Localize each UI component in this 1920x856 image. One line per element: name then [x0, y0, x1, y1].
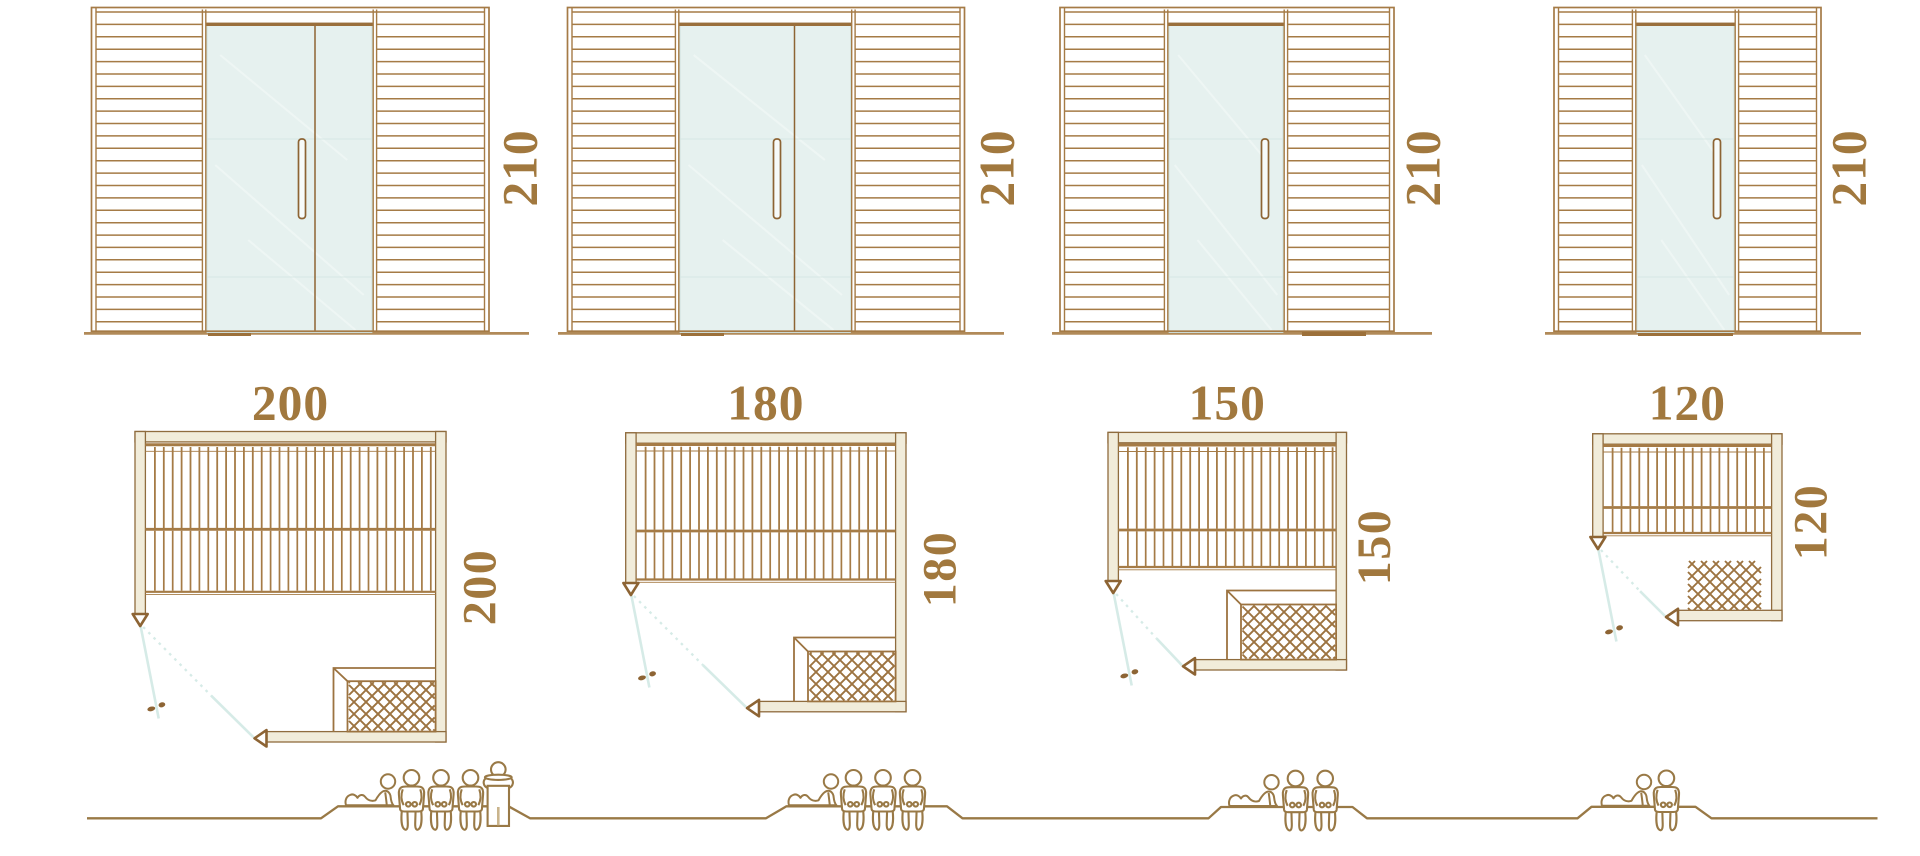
svg-text:180: 180 — [914, 531, 967, 608]
svg-text:210: 210 — [970, 129, 1025, 206]
svg-text:180: 180 — [727, 376, 804, 431]
svg-text:150: 150 — [1189, 376, 1266, 431]
svg-text:210: 210 — [1396, 129, 1451, 206]
svg-text:120: 120 — [1785, 484, 1838, 561]
svg-text:210: 210 — [493, 129, 548, 206]
svg-text:150: 150 — [1348, 509, 1401, 586]
svg-text:200: 200 — [252, 376, 329, 431]
svg-text:120: 120 — [1649, 376, 1726, 431]
svg-text:200: 200 — [454, 549, 507, 626]
svg-text:210: 210 — [1822, 129, 1877, 206]
